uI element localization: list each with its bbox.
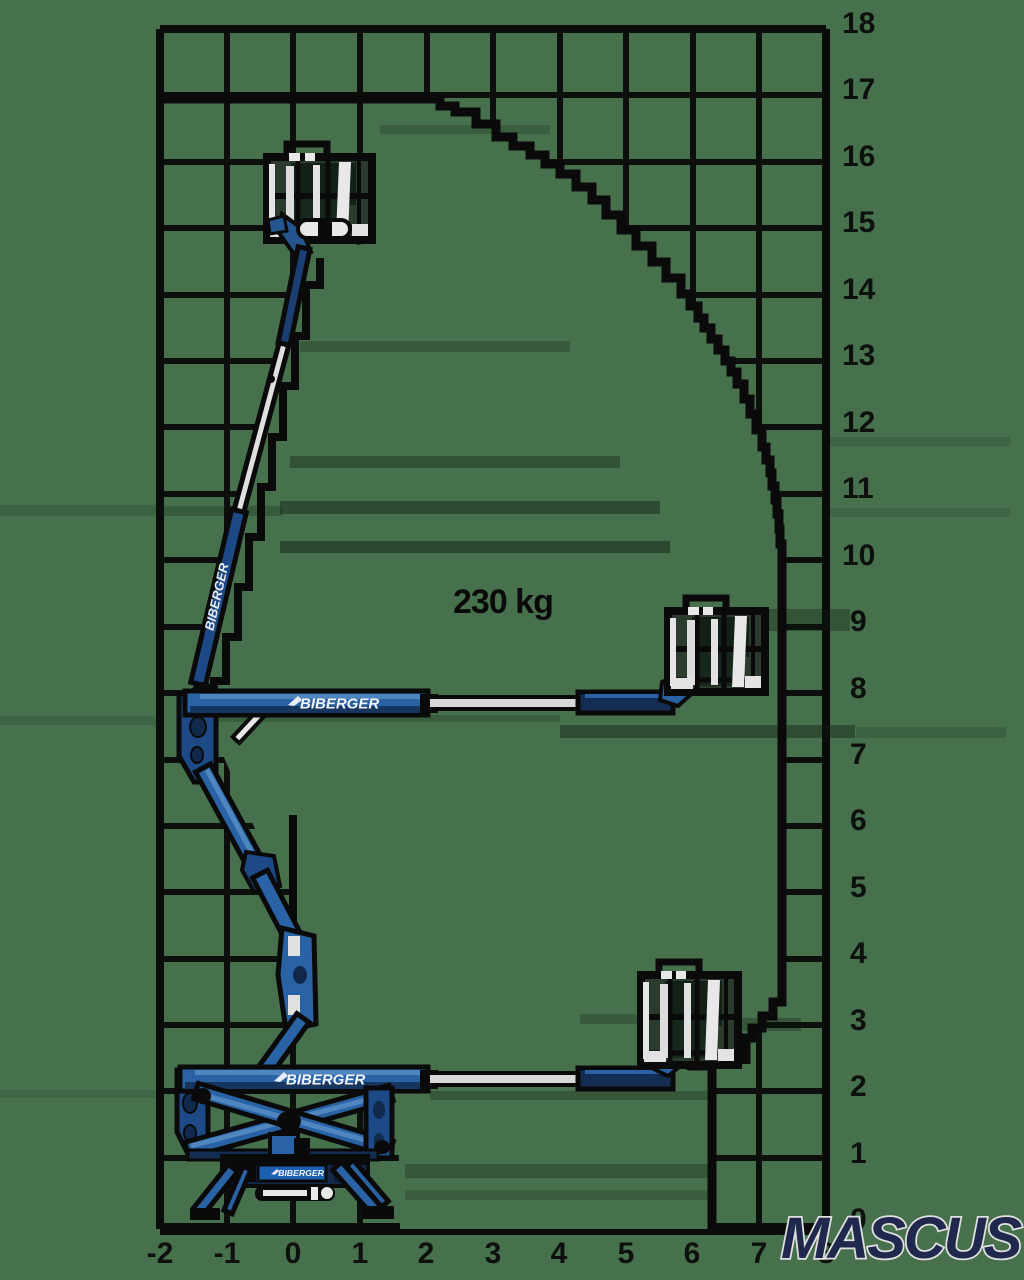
svg-text:7: 7 [751, 1237, 768, 1270]
svg-text:13: 13 [842, 339, 875, 372]
svg-text:6: 6 [850, 804, 867, 837]
svg-text:3: 3 [485, 1237, 502, 1270]
svg-text:11: 11 [842, 472, 874, 505]
svg-text:7: 7 [850, 738, 867, 771]
svg-text:-2: -2 [147, 1237, 174, 1270]
svg-text:8: 8 [850, 672, 867, 705]
svg-text:-1: -1 [214, 1237, 241, 1270]
svg-text:4: 4 [850, 937, 867, 970]
svg-text:6: 6 [684, 1237, 701, 1270]
svg-text:1: 1 [352, 1237, 369, 1270]
svg-text:15: 15 [842, 206, 875, 239]
svg-text:1: 1 [850, 1137, 867, 1170]
svg-text:BIBERGER: BIBERGER [286, 1072, 365, 1089]
svg-text:BIBERGER: BIBERGER [278, 1168, 325, 1178]
svg-text:18: 18 [842, 7, 875, 40]
svg-text:MASCUS: MASCUS [781, 1206, 1023, 1271]
svg-text:12: 12 [842, 406, 875, 439]
svg-text:230 kg: 230 kg [453, 583, 553, 621]
svg-text:3: 3 [850, 1004, 867, 1037]
svg-text:2: 2 [418, 1237, 435, 1270]
svg-text:10: 10 [842, 539, 875, 572]
svg-text:5: 5 [618, 1237, 635, 1270]
svg-text:5: 5 [850, 871, 867, 904]
svg-text:0: 0 [285, 1237, 302, 1270]
svg-text:BIBERGER: BIBERGER [300, 696, 379, 713]
svg-text:16: 16 [842, 140, 875, 173]
svg-text:4: 4 [551, 1237, 568, 1270]
svg-text:9: 9 [850, 605, 867, 638]
svg-text:2: 2 [850, 1070, 867, 1103]
svg-text:17: 17 [842, 73, 875, 106]
svg-text:14: 14 [842, 273, 876, 306]
